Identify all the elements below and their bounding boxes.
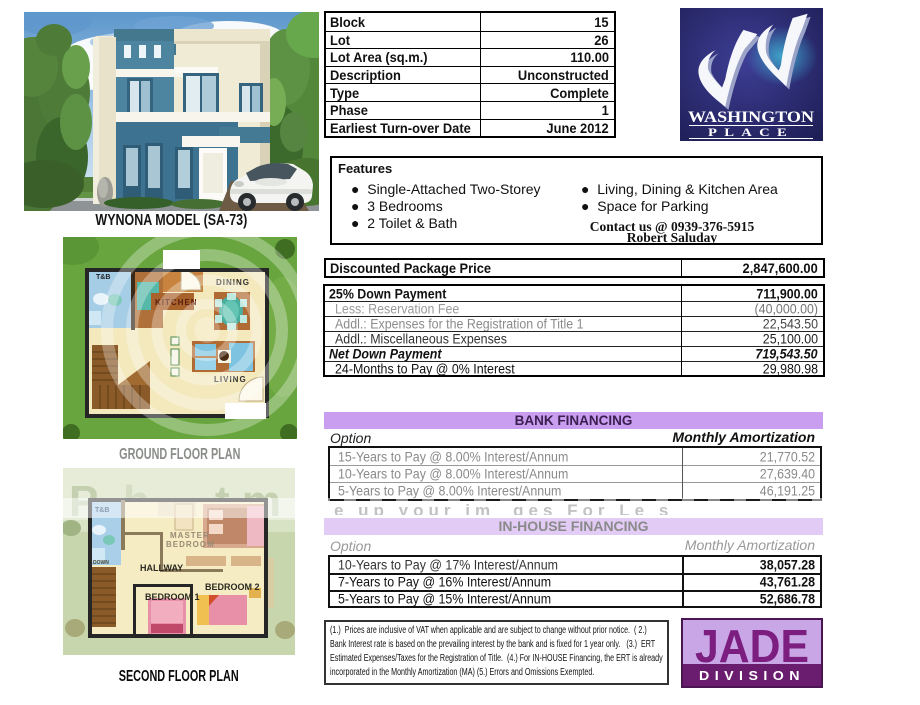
- svg-text:BEDROOM 1: BEDROOM 1: [145, 592, 200, 602]
- svg-text:WASHINGTON: WASHINGTON: [688, 109, 815, 126]
- svg-text:DOWN: DOWN: [93, 560, 109, 566]
- svg-text:DIVISION: DIVISION: [699, 668, 805, 683]
- svg-text:BEDROOM: BEDROOM: [166, 540, 215, 549]
- svg-text:PLACE: PLACE: [708, 125, 794, 139]
- svg-text:MASTER: MASTER: [170, 531, 210, 540]
- svg-text:BEDROOM 2: BEDROOM 2: [205, 582, 260, 592]
- svg-text:JADE: JADE: [695, 620, 809, 672]
- svg-text:T&B: T&B: [96, 274, 110, 281]
- svg-text:HALLWAY: HALLWAY: [140, 563, 183, 573]
